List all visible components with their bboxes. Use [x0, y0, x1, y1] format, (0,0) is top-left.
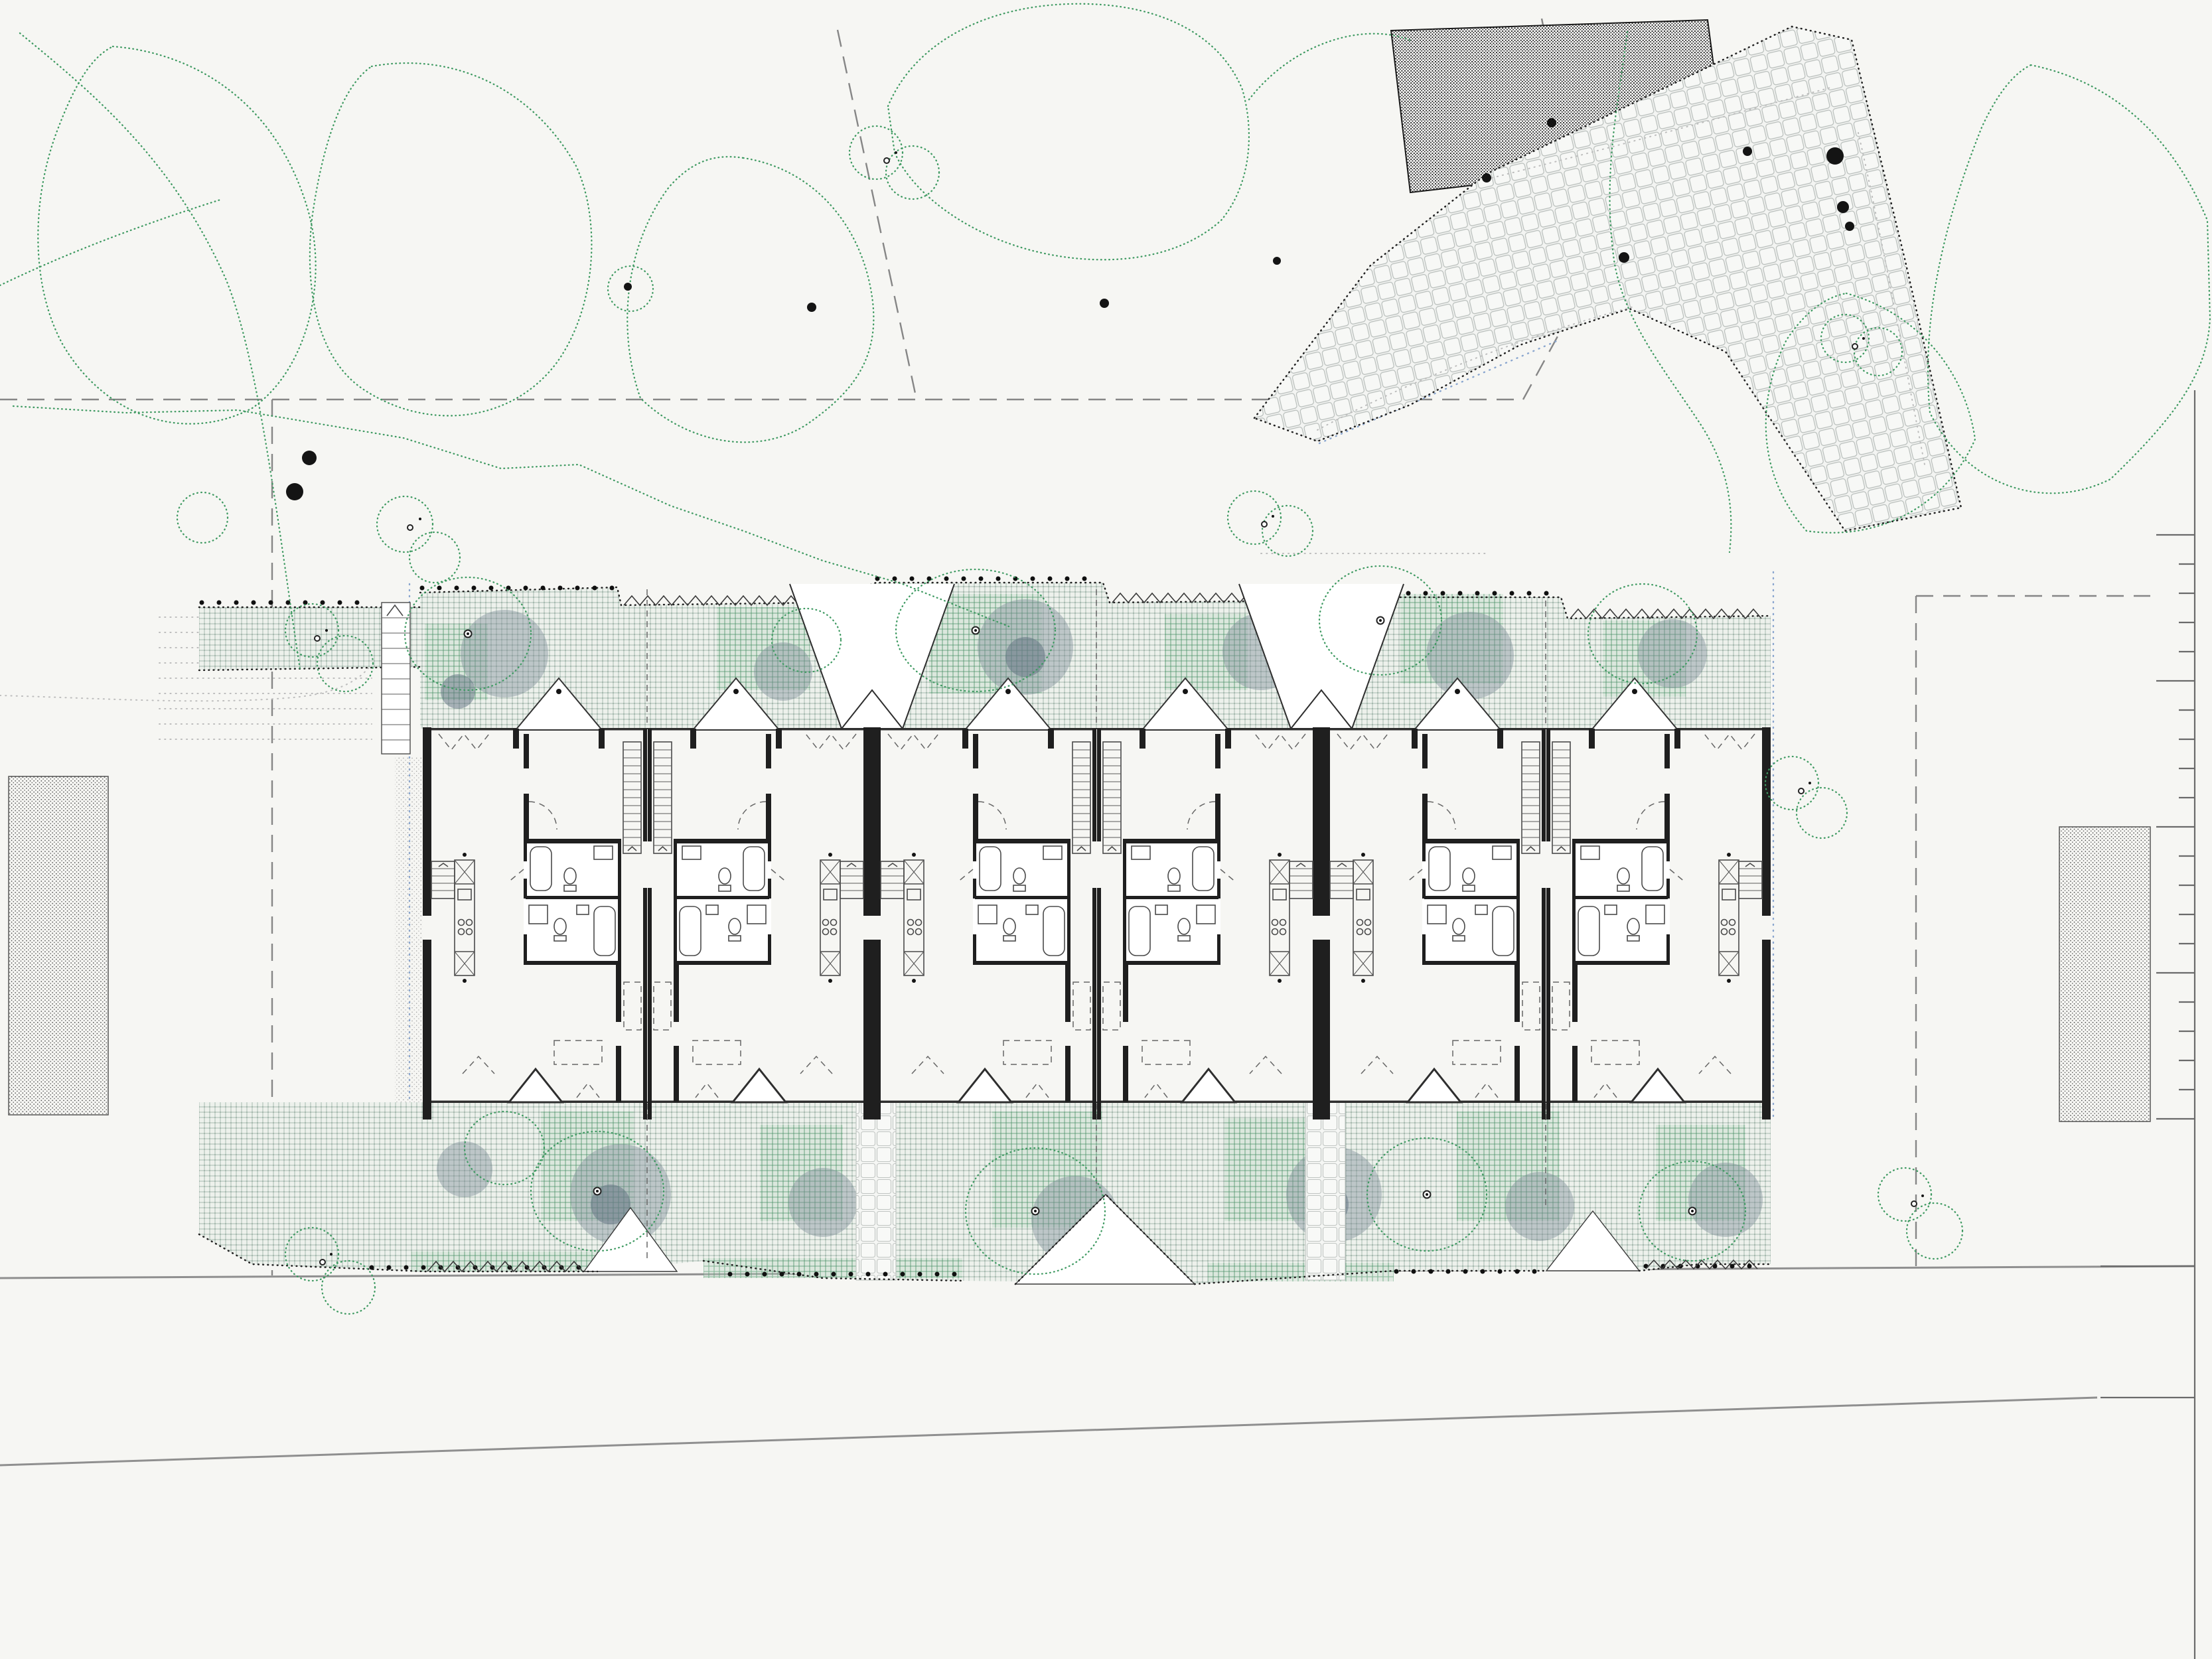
pavement-rect-right — [2059, 827, 2150, 1121]
pavement-rect-left — [9, 776, 108, 1115]
site-plan-page — [0, 0, 2212, 1659]
garden-terraces-south — [199, 1102, 1771, 1284]
site-plan-drawing — [0, 0, 2212, 1659]
